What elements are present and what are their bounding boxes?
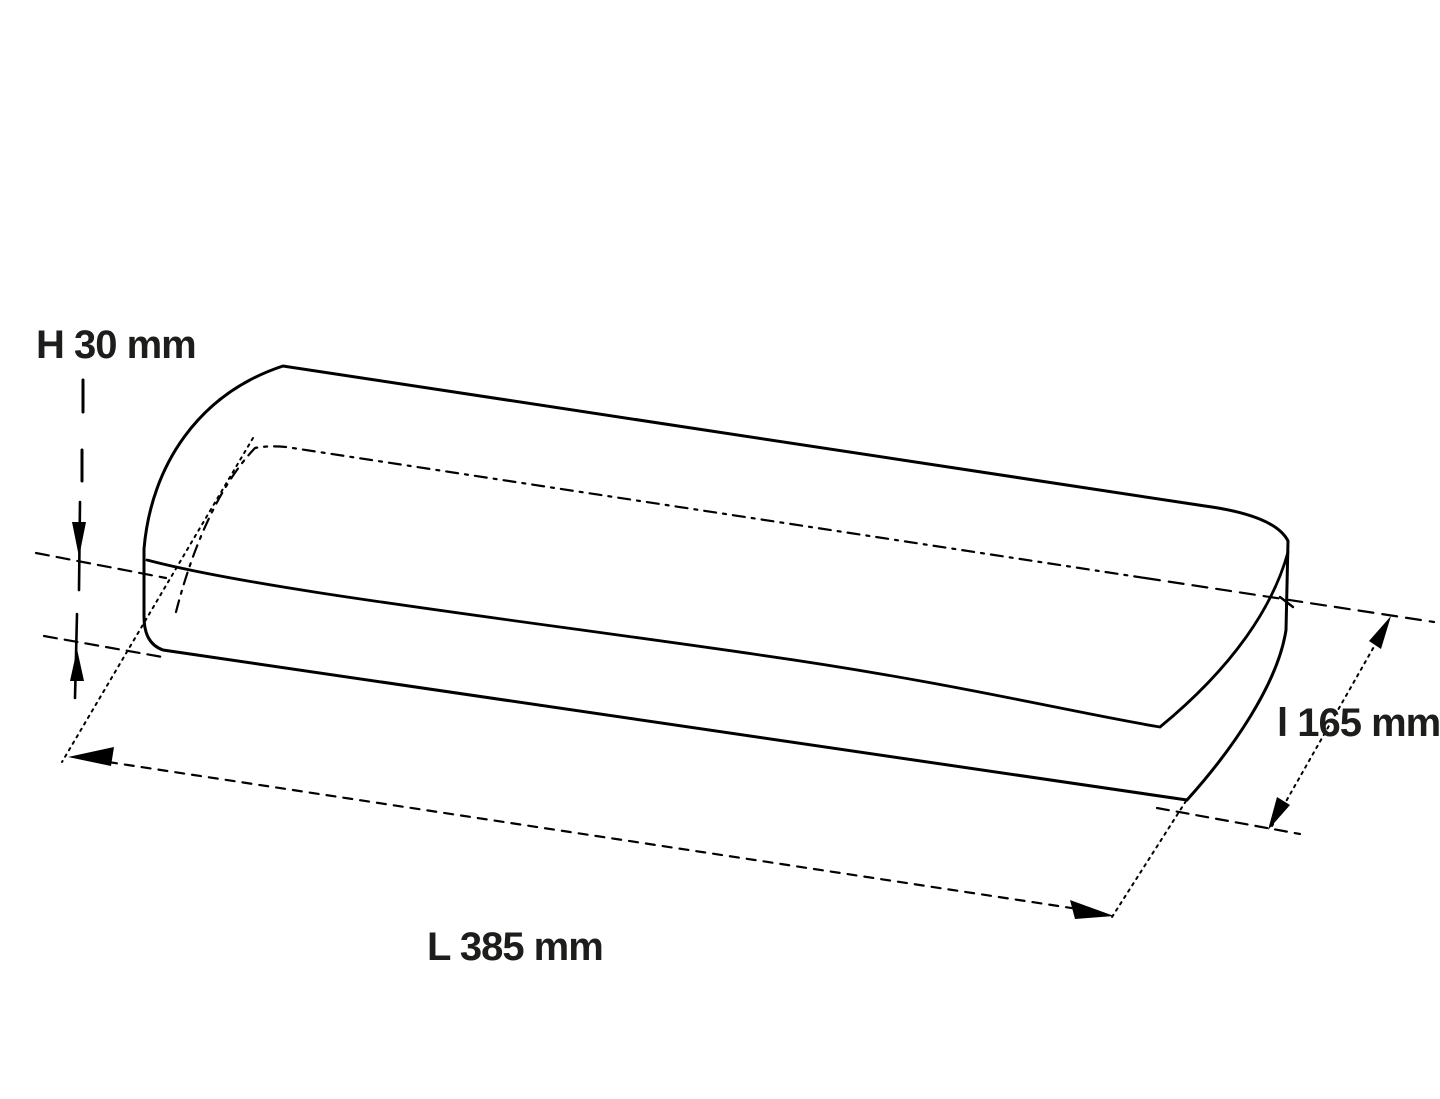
height-arrowhead-down-icon [72, 522, 86, 557]
width-dimension-label: l 165 mm [1277, 703, 1440, 743]
width-arrowhead-up-icon [1369, 616, 1391, 649]
slab-top-face-front-edge [147, 552, 1288, 727]
length-arrowhead-left-icon [68, 747, 114, 766]
length-arrowhead-right-icon [1070, 900, 1114, 919]
slab-technical-drawing [0, 0, 1440, 1099]
slab-hidden-bottom-edge [176, 446, 1145, 612]
length-dimension-line [108, 762, 1078, 909]
diagram-canvas: H 30 mm l 165 mm L 385 mm [0, 0, 1440, 1099]
height-dimension-label: H 30 mm [36, 325, 196, 365]
width-extension-line-top [1145, 578, 1434, 622]
length-projection-line-right [1112, 801, 1186, 917]
slab-outer-silhouette [144, 366, 1288, 800]
height-extension-line-top [36, 553, 166, 578]
length-dimension-label: L 385 mm [427, 927, 603, 967]
height-arrowhead-up-icon [70, 649, 84, 681]
width-arrowhead-down-icon [1268, 797, 1290, 830]
